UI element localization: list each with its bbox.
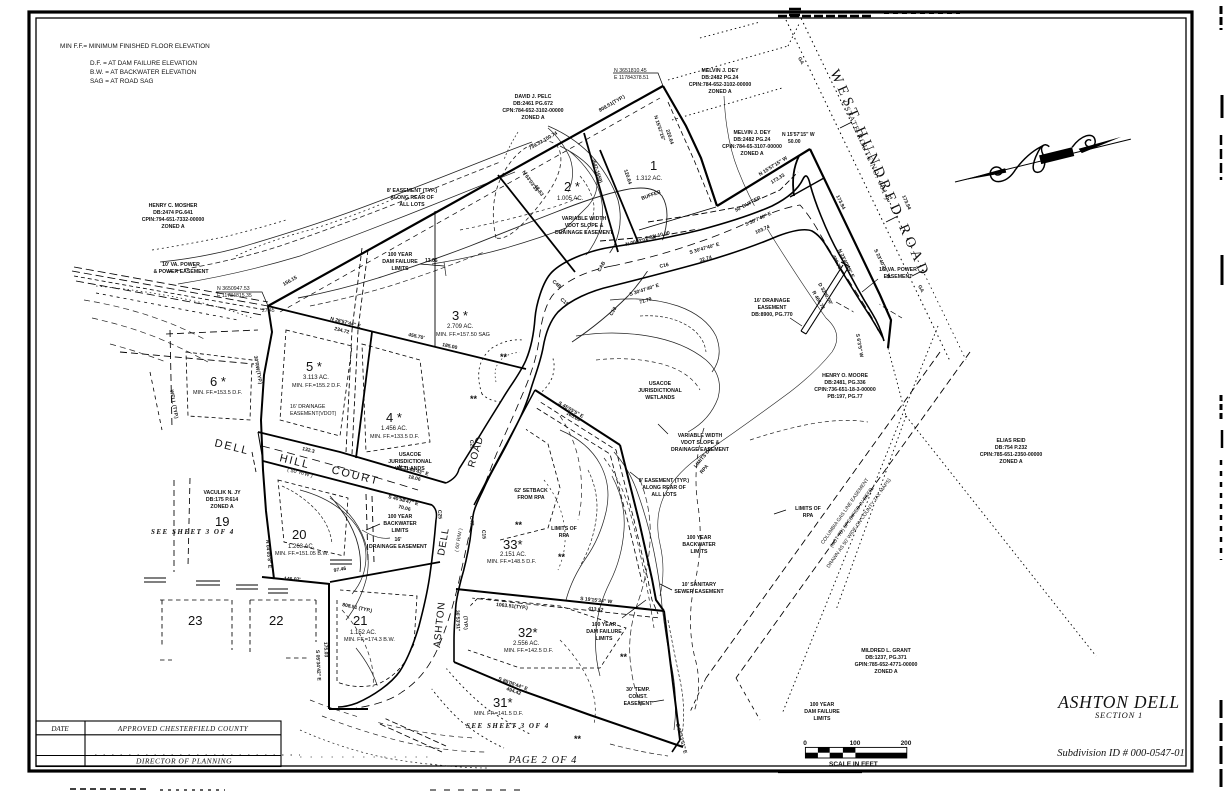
svg-text:DAM FAILURE: DAM FAILURE — [586, 629, 622, 635]
svg-text:16' DRAINAGE: 16' DRAINAGE — [754, 298, 791, 304]
svg-text:23: 23 — [188, 613, 202, 628]
svg-text:62' SETBACK: 62' SETBACK — [514, 488, 548, 494]
svg-text:ZONED A: ZONED A — [740, 151, 763, 157]
svg-text:C25: C25 — [436, 510, 443, 520]
svg-text:MELVIN J. DEY: MELVIN J. DEY — [701, 68, 739, 74]
svg-text:D.F. = AT DAM FAILURE ELEVAT: D.F. = AT DAM FAILURE ELEVATION — [90, 60, 197, 67]
svg-text:MIN. FF.=155.2 D.F.: MIN. FF.=155.2 D.F. — [292, 383, 342, 389]
svg-text:MIN. FF.=174.3 B.W.: MIN. FF.=174.3 B.W. — [344, 637, 395, 643]
svg-text:146.07': 146.07' — [284, 576, 301, 583]
svg-text:DB:2481, PG.336: DB:2481, PG.336 — [824, 380, 865, 386]
svg-text:RPA: RPA — [803, 513, 814, 519]
svg-text:**: ** — [574, 734, 582, 744]
svg-text:ALL LOTS: ALL LOTS — [399, 202, 425, 208]
svg-text:B.W. = AT BACKWATER ELEVATION: B.W. = AT BACKWATER ELEVATION — [90, 69, 197, 76]
svg-text:MIN. FF.=141.5 D.F.: MIN. FF.=141.5 D.F. — [474, 711, 524, 717]
svg-text:CPIN:784-65-3107-00000: CPIN:784-65-3107-00000 — [722, 144, 782, 150]
svg-text:MILDRED L. GRANT: MILDRED L. GRANT — [861, 648, 911, 654]
svg-text:EASEMENT(VDOT): EASEMENT(VDOT) — [290, 411, 337, 417]
svg-text:2 *: 2 * — [564, 179, 580, 194]
svg-text:30' TEMP.: 30' TEMP. — [626, 687, 650, 693]
svg-text:E 11784815.35: E 11784815.35 — [217, 293, 252, 299]
svg-text:175.03: 175.03 — [322, 642, 329, 658]
svg-text:SAG = AT ROAD SAG: SAG = AT ROAD SAG — [90, 78, 154, 85]
svg-text:SECTION 1: SECTION 1 — [1095, 710, 1143, 720]
svg-text:LIMITS: LIMITS — [391, 528, 409, 534]
svg-text:ZONED A: ZONED A — [874, 669, 897, 675]
svg-text:ZONED A: ZONED A — [521, 115, 544, 121]
svg-text:N 3650947.53: N 3650947.53 — [217, 286, 250, 292]
svg-text:DB:2474 PG.641: DB:2474 PG.641 — [153, 210, 193, 216]
svg-text:DATE: DATE — [50, 725, 69, 733]
svg-text:DB:175 P.614: DB:175 P.614 — [206, 497, 238, 503]
svg-text:DB:1237, PG.371: DB:1237, PG.371 — [865, 655, 906, 661]
svg-text:10' VA. POWER: 10' VA. POWER — [162, 262, 200, 268]
svg-text:DB:754 P.232: DB:754 P.232 — [995, 445, 1027, 451]
svg-text:APPROVED CHESTERFIELD COUNTY: APPROVED CHESTERFIELD COUNTY — [117, 725, 249, 733]
svg-text:16': 16' — [394, 537, 401, 543]
svg-text:100 YEAR: 100 YEAR — [388, 252, 413, 258]
svg-text:ZONED A: ZONED A — [161, 224, 184, 230]
svg-text:BACKWATER: BACKWATER — [682, 542, 716, 548]
svg-text:1.005 AC.: 1.005 AC. — [557, 196, 584, 202]
svg-text:CONST.: CONST. — [628, 694, 648, 700]
svg-text:2.151 AC.: 2.151 AC. — [500, 552, 527, 558]
svg-text:50.00: 50.00 — [788, 139, 801, 145]
svg-text:MIN. FF.=148.5 D.F.: MIN. FF.=148.5 D.F. — [487, 559, 537, 565]
svg-text:DB:2482 PG.24: DB:2482 PG.24 — [734, 137, 771, 143]
svg-text:ASHTON DELL: ASHTON DELL — [1057, 692, 1180, 712]
svg-text:100: 100 — [850, 740, 861, 747]
svg-text:1.152 AC.: 1.152 AC. — [350, 630, 377, 636]
svg-text:MIN F.F.= MINIMUM FINISHED FLO: MIN F.F.= MINIMUM FINISHED FLOOR ELEVATI… — [60, 43, 210, 50]
svg-text:3 *: 3 * — [452, 308, 468, 323]
svg-text:MIN. FF.=133.5 D.F.: MIN. FF.=133.5 D.F. — [370, 434, 420, 440]
svg-text:DB:2482 PG.24: DB:2482 PG.24 — [702, 75, 739, 81]
svg-text:ALONG REAR OF: ALONG REAR OF — [642, 485, 686, 491]
svg-text:CPIN:785-651-2350-00000: CPIN:785-651-2350-00000 — [980, 452, 1043, 458]
svg-text:ELIAS REID: ELIAS REID — [996, 438, 1025, 444]
svg-text:VDOT SLOPE &: VDOT SLOPE & — [565, 223, 604, 229]
svg-text:ZONED A: ZONED A — [210, 504, 233, 510]
svg-text:VACULIK N. JY: VACULIK N. JY — [203, 490, 241, 496]
svg-text:**: ** — [500, 352, 508, 362]
svg-text:200: 200 — [901, 740, 912, 747]
svg-text:10' SANITARY: 10' SANITARY — [682, 582, 717, 588]
svg-text:**: ** — [515, 520, 523, 530]
svg-text:PAGE 2 OF 4: PAGE 2 OF 4 — [508, 755, 578, 766]
svg-text:& POWER EASEMENT: & POWER EASEMENT — [153, 269, 209, 275]
svg-text:Subdivision ID # 000-0547-01: Subdivision ID # 000-0547-01 — [1057, 748, 1184, 759]
svg-text:RPA: RPA — [559, 533, 570, 539]
svg-text:**: ** — [558, 552, 566, 562]
svg-text:1: 1 — [650, 158, 657, 173]
svg-text:LIMITS OF: LIMITS OF — [795, 506, 821, 512]
svg-text:MIN. FF.=151.05 B.W.: MIN. FF.=151.05 B.W. — [275, 551, 329, 557]
svg-text:MIN. FF.=142.5 D.F.: MIN. FF.=142.5 D.F. — [504, 648, 554, 654]
svg-text:20: 20 — [292, 527, 306, 542]
svg-text:27.45: 27.45 — [262, 308, 275, 314]
svg-text:DAVID J. PELC: DAVID J. PELC — [515, 94, 552, 100]
svg-text:4 *: 4 * — [386, 410, 402, 425]
svg-text:ALL LOTS: ALL LOTS — [651, 492, 677, 498]
svg-text:FROM RPA: FROM RPA — [517, 495, 545, 501]
svg-text:8' EASEMENT (TYP.): 8' EASEMENT (TYP.) — [639, 478, 689, 484]
svg-text:5 *: 5 * — [306, 359, 322, 374]
svg-text:33*: 33* — [503, 537, 523, 552]
svg-text:LIMITS OF: LIMITS OF — [551, 526, 577, 532]
svg-text:31*: 31* — [493, 695, 513, 710]
svg-text:SCALE IN FEET: SCALE IN FEET — [829, 761, 878, 768]
svg-text:1.263 AC.: 1.263 AC. — [288, 544, 315, 550]
svg-text:ZONED A: ZONED A — [708, 89, 731, 95]
svg-text:100 YEAR: 100 YEAR — [388, 514, 413, 520]
svg-text:DAM FAILURE: DAM FAILURE — [804, 709, 840, 715]
svg-text:**: ** — [620, 652, 628, 662]
svg-text:0: 0 — [803, 740, 807, 747]
svg-text:22: 22 — [269, 613, 283, 628]
svg-text:DAM FAILURE: DAM FAILURE — [382, 259, 418, 265]
svg-text:36'53'51": 36'53'51" — [454, 610, 461, 632]
svg-text:MIN. FF.=157.50 SAG: MIN. FF.=157.50 SAG — [436, 332, 490, 338]
svg-text:DB:2461 PG.672: DB:2461 PG.672 — [513, 101, 553, 107]
svg-text:N 15'57'15" W: N 15'57'15" W — [782, 132, 815, 138]
svg-text:SEWER EASEMENT: SEWER EASEMENT — [674, 589, 724, 595]
svg-text:GPIN:785-652-4771-00000: GPIN:785-652-4771-00000 — [855, 662, 918, 668]
svg-text:USACOE: USACOE — [649, 381, 672, 387]
svg-text:C25: C25 — [468, 440, 475, 450]
svg-text:16' DRAINAGE: 16' DRAINAGE — [290, 404, 326, 410]
svg-text:LIMITS: LIMITS — [690, 549, 708, 555]
svg-text:SEE SHEET 3 OF 4: SEE SHEET 3 OF 4 — [151, 528, 235, 536]
svg-text:100 YEAR: 100 YEAR — [592, 622, 617, 628]
svg-text:19: 19 — [215, 514, 229, 529]
svg-text:DIRECTOR OF PLANNING: DIRECTOR OF PLANNING — [135, 757, 232, 766]
svg-text:VDOT SLOPE &: VDOT SLOPE & — [681, 440, 720, 446]
svg-text:ZONED A: ZONED A — [999, 459, 1022, 465]
svg-text:HENRY O. MOORE: HENRY O. MOORE — [822, 373, 868, 379]
svg-text:BACKWATER: BACKWATER — [383, 521, 417, 527]
svg-text:VARIABLE WIDTH: VARIABLE WIDTH — [678, 433, 723, 439]
svg-text:LIMITS: LIMITS — [391, 266, 409, 272]
svg-text:DB:8900, PG.770: DB:8900, PG.770 — [751, 312, 792, 318]
svg-text:100 YEAR: 100 YEAR — [810, 702, 835, 708]
svg-text:8' EASEMENT (TYP.): 8' EASEMENT (TYP.) — [387, 188, 437, 194]
svg-text:CPN:784-652-3102-00000: CPN:784-652-3102-00000 — [502, 108, 563, 114]
svg-text:E 11784378.51: E 11784378.51 — [614, 75, 649, 81]
svg-text:(TYP.): (TYP.) — [462, 616, 468, 630]
svg-text:JURISDICTIONAL: JURISDICTIONAL — [638, 388, 682, 394]
svg-text:SEE SHEET 3 OF 4: SEE SHEET 3 OF 4 — [466, 722, 550, 730]
svg-text:**: ** — [470, 394, 478, 404]
svg-text:LIMITS: LIMITS — [595, 636, 613, 642]
svg-text:HENRY C. MOSHER: HENRY C. MOSHER — [149, 203, 198, 209]
svg-text:3.113 AC.: 3.113 AC. — [303, 375, 329, 381]
svg-text:C4B: C4B — [468, 516, 475, 527]
svg-text:PB:197, PG.77: PB:197, PG.77 — [827, 394, 862, 400]
svg-text:ALONG REAR OF: ALONG REAR OF — [390, 195, 434, 201]
svg-text:CPIN:794-651-7332-00000: CPIN:794-651-7332-00000 — [142, 217, 205, 223]
svg-text:MELVIN J. DEY: MELVIN J. DEY — [733, 130, 771, 136]
svg-text:DRAINAGE EASEMENT: DRAINAGE EASEMENT — [671, 447, 730, 453]
svg-text:CPIN:736-651-18-3-00000: CPIN:736-651-18-3-00000 — [814, 387, 876, 393]
svg-text:2.709 AC.: 2.709 AC. — [447, 324, 474, 330]
svg-text:WETLANDS: WETLANDS — [645, 395, 675, 401]
svg-text:21: 21 — [353, 613, 367, 628]
svg-text:DRAINAGE EASEMENT: DRAINAGE EASEMENT — [555, 230, 614, 236]
svg-text:C15: C15 — [480, 530, 487, 540]
svg-text:VARIABLE WIDTH: VARIABLE WIDTH — [562, 216, 607, 222]
svg-text:6 *: 6 * — [210, 374, 226, 389]
svg-text:1.456 AC.: 1.456 AC. — [381, 426, 408, 432]
svg-text:EASEMENT: EASEMENT — [758, 305, 788, 311]
svg-text:JURISDICTIONAL: JURISDICTIONAL — [388, 459, 432, 465]
svg-text:100 YEAR: 100 YEAR — [687, 535, 712, 541]
svg-text:13.06: 13.06 — [425, 258, 438, 264]
svg-text:CPIN:784-652-3102-00000: CPIN:784-652-3102-00000 — [689, 82, 752, 88]
svg-text:MIN. FF.=153.5 D.F.: MIN. FF.=153.5 D.F. — [193, 390, 243, 396]
svg-text:2.556 AC.: 2.556 AC. — [513, 641, 540, 647]
svg-text:1.312 AC.: 1.312 AC. — [636, 176, 663, 182]
svg-text:LIMITS: LIMITS — [813, 716, 831, 722]
svg-text:EASEMENT: EASEMENT — [624, 701, 654, 707]
svg-text:32*: 32* — [518, 625, 538, 640]
svg-text:DRAINAGE EASEMENT: DRAINAGE EASEMENT — [369, 544, 428, 550]
svg-text:USACOE: USACOE — [399, 452, 422, 458]
